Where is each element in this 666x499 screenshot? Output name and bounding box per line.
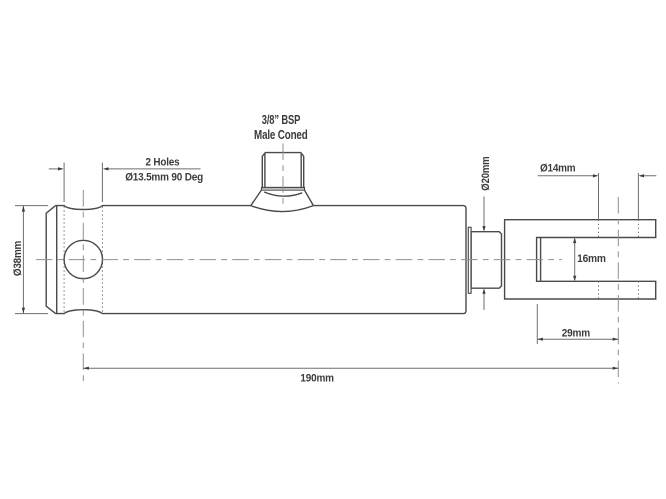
- svg-text:Ø13.5mm 90 Deg: Ø13.5mm 90 Deg: [125, 171, 203, 183]
- svg-text:2 Holes: 2 Holes: [146, 157, 180, 169]
- svg-text:16mm: 16mm: [577, 253, 606, 265]
- svg-text:29mm: 29mm: [562, 328, 591, 340]
- svg-text:3/8” BSP: 3/8” BSP: [262, 113, 301, 127]
- svg-text:Ø14mm: Ø14mm: [540, 163, 576, 175]
- svg-text:Male Coned: Male Coned: [254, 128, 308, 142]
- svg-text:190mm: 190mm: [300, 373, 334, 385]
- svg-text:Ø38mm: Ø38mm: [12, 240, 24, 276]
- svg-text:Ø20mm: Ø20mm: [480, 156, 492, 191]
